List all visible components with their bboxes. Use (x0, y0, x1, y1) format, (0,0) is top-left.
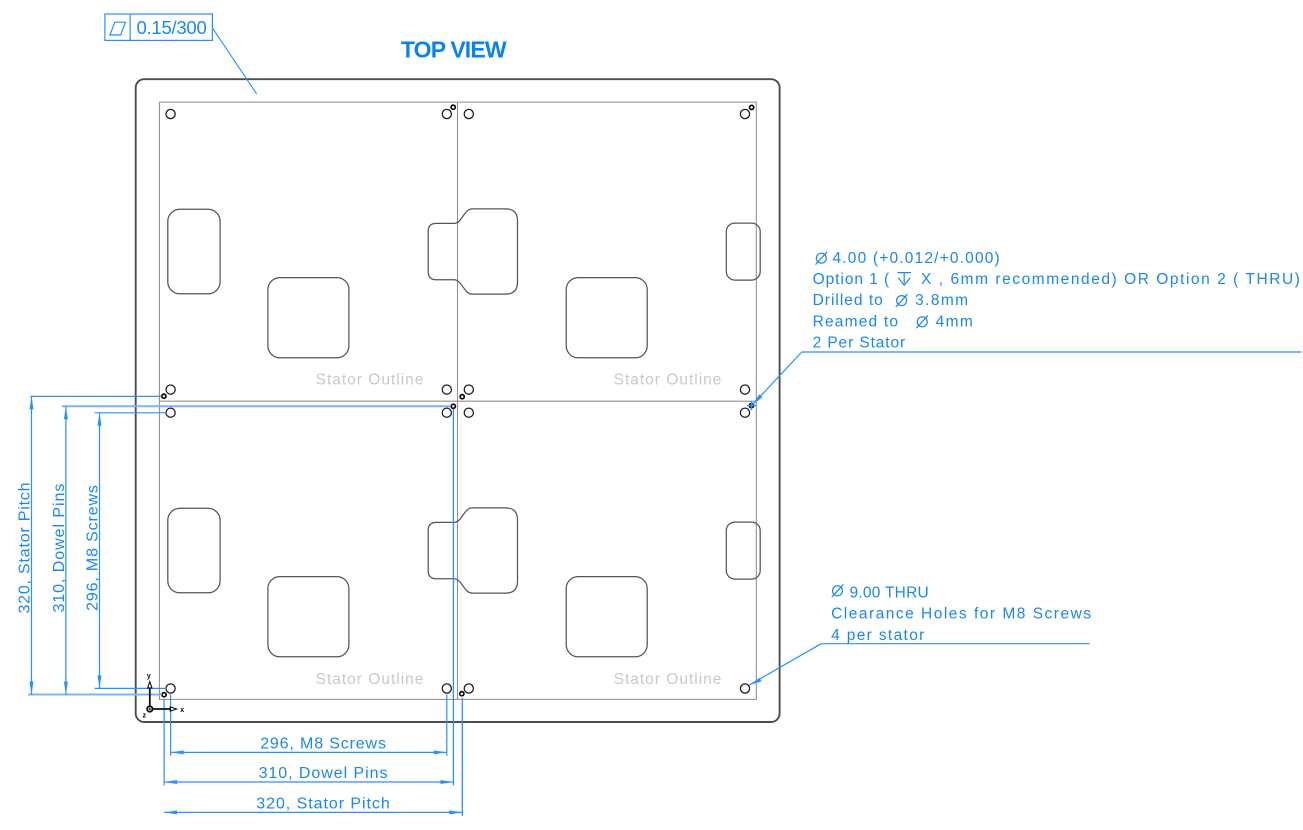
svg-text:y: y (147, 673, 151, 680)
svg-text:4 per stator: 4 per stator (831, 627, 926, 644)
svg-text:TOP VIEW: TOP VIEW (401, 37, 507, 63)
svg-text:3.8mm: 3.8mm (915, 292, 969, 309)
svg-text:z: z (143, 712, 147, 719)
svg-text:9.00 THRU: 9.00 THRU (850, 584, 930, 601)
svg-text:Drilled to: Drilled to (813, 292, 884, 309)
svg-text:Stator Outline: Stator Outline (614, 372, 723, 389)
svg-text:Stator Outline: Stator Outline (316, 372, 425, 389)
svg-text:320, Stator Pitch: 320, Stator Pitch (256, 796, 390, 813)
svg-text:X , 6mm recommended) OR Option: X , 6mm recommended) OR Option 2 ( THRU) (921, 271, 1301, 288)
svg-text:310, Dowel Pins: 310, Dowel Pins (51, 483, 68, 613)
svg-text:Clearance Holes for M8 Screws: Clearance Holes for M8 Screws (831, 606, 1092, 623)
svg-text:Option 1 (: Option 1 ( (813, 271, 891, 288)
svg-text:Stator Outline: Stator Outline (614, 671, 723, 688)
svg-text:296, M8 Screws: 296, M8 Screws (260, 736, 387, 753)
svg-text:0.15/300: 0.15/300 (137, 17, 207, 38)
svg-text:2 Per Stator: 2 Per Stator (813, 335, 907, 352)
svg-text:4.00 (+0.012/+0.000): 4.00 (+0.012/+0.000) (833, 250, 1001, 267)
svg-text:x: x (180, 707, 184, 714)
svg-text:Reamed to: Reamed to (813, 313, 900, 330)
svg-text:296, M8 Screws: 296, M8 Screws (85, 484, 102, 611)
svg-text:4mm: 4mm (936, 313, 975, 330)
svg-text:310, Dowel Pins: 310, Dowel Pins (259, 765, 389, 782)
svg-text:320, Stator Pitch: 320, Stator Pitch (17, 482, 34, 614)
svg-text:Stator Outline: Stator Outline (316, 671, 425, 688)
